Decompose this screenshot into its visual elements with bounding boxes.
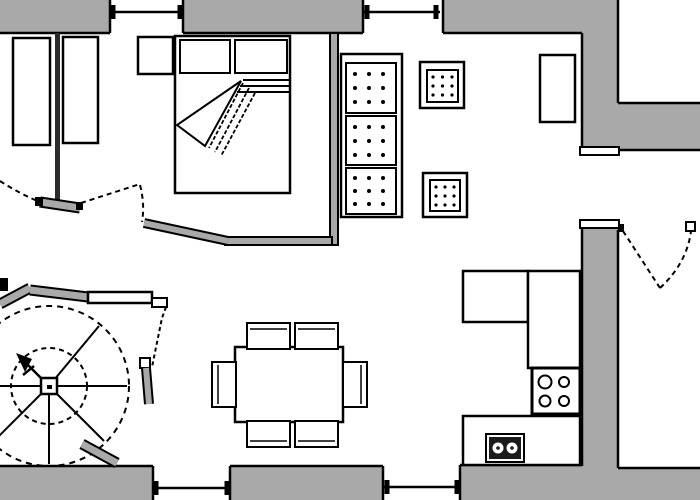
kitchen-stove: [532, 368, 580, 414]
stove-burner-2: [559, 377, 569, 387]
chair-bottom-2: [295, 421, 338, 447]
sideroom-door-swing: [660, 231, 691, 288]
stair-landing-bar-small: [152, 298, 167, 307]
bed-pillow-right: [235, 40, 287, 73]
cabinet: [540, 55, 575, 122]
nightstand: [138, 37, 173, 74]
floor-plan: [0, 0, 700, 500]
sideroom-door-hinge-dark: [618, 224, 624, 232]
kitchen-sink-dot-2: [510, 446, 514, 450]
sideroom-door-hinge-white: [686, 222, 695, 231]
stair-edge-line: [152, 307, 166, 367]
stair-landing-bar: [88, 292, 152, 303]
entry-door-stub: [40, 202, 80, 208]
bed-pillow-left: [180, 40, 230, 73]
chair-bottom-1: [247, 421, 290, 447]
chair-top-2: [295, 323, 338, 349]
wall-right-lower-vertical: [582, 228, 618, 500]
wall-bottom-2: [230, 466, 383, 500]
kitchen-counter-block: [463, 271, 528, 322]
stair-rail-jamb: [140, 358, 150, 368]
wall-bedroom-horizontal: [225, 237, 332, 245]
bedroom-door-leaf: [81, 184, 140, 203]
entry-door-stub-end-left: [35, 197, 43, 206]
chair-top-1: [247, 323, 290, 349]
dining-table: [235, 347, 343, 422]
wardrobe-left: [13, 38, 50, 145]
wall-top-left: [0, 0, 110, 33]
wall-bedroom-diagonal: [144, 223, 228, 241]
stair-rail-right: [146, 368, 149, 404]
wall-right-horizontal: [618, 103, 700, 150]
wall-bottom-right: [618, 468, 700, 500]
wall-cap-upper: [580, 147, 619, 155]
bedroom-door-swing: [140, 185, 143, 222]
wall-cap-lower: [580, 220, 619, 228]
floor-plan-svg: [0, 0, 700, 500]
kitchen-sink-dot-1: [496, 446, 500, 450]
wall-bottom-1: [0, 466, 153, 500]
stair-rail-top: [30, 290, 88, 297]
chair-right: [343, 362, 367, 407]
wardrobe-right: [63, 37, 98, 143]
wall-right-upper-vertical: [582, 33, 618, 147]
chair-left: [212, 362, 236, 407]
page: { "title": "apartment-floor-plan", "canv…: [0, 0, 700, 500]
kitchen-counter-column: [528, 271, 580, 368]
stove-burner-4: [559, 396, 569, 406]
entry-door-swing: [0, 181, 40, 202]
wall-bedroom-vertical: [330, 33, 338, 245]
stair-rail-corner-tick: [0, 278, 8, 291]
sideroom-door-leaf: [623, 231, 660, 288]
wall-closet-partition: [55, 33, 60, 203]
wall-top-middle: [183, 0, 363, 33]
stove-burner-3: [540, 396, 551, 407]
wall-bottom-3: [460, 465, 582, 500]
stair-hub-dot: [47, 385, 52, 389]
stove-burner-1: [539, 376, 552, 389]
wall-top-right: [443, 0, 618, 33]
